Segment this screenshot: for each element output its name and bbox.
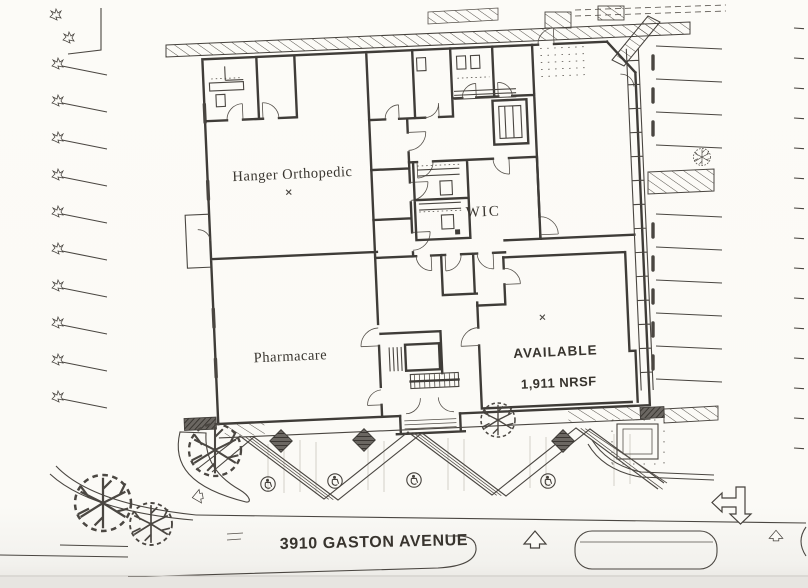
scan-edge-strip bbox=[0, 577, 808, 588]
suite-label-pharmacare: Pharmacare bbox=[253, 347, 327, 366]
street-lane-lines-left bbox=[0, 545, 128, 557]
hatch-fragment bbox=[428, 8, 498, 24]
toilet bbox=[456, 56, 466, 69]
toilet bbox=[416, 58, 426, 71]
elevator-cab bbox=[499, 105, 522, 138]
west-alcove-door-arc bbox=[198, 229, 211, 242]
tree-icon bbox=[189, 424, 241, 476]
rooftop-unit bbox=[545, 12, 571, 28]
walkway-hatch bbox=[224, 423, 264, 437]
vestibule-steps bbox=[404, 419, 456, 429]
wic-suite bbox=[409, 156, 558, 244]
curb-return-arc bbox=[801, 527, 806, 556]
west-entry-alcove bbox=[185, 214, 211, 268]
planter-diamond bbox=[552, 430, 575, 453]
north-sidewalk-band bbox=[166, 22, 690, 57]
available-door-arc bbox=[460, 328, 479, 347]
parking-left-curb bbox=[68, 8, 101, 54]
stair-landing bbox=[405, 343, 440, 370]
restroom-walls bbox=[204, 57, 297, 121]
wc-counter-2 bbox=[419, 202, 461, 210]
restroom-door-arcs bbox=[226, 102, 279, 120]
traffic-arrow-up-icon bbox=[524, 531, 546, 548]
suite-label-hanger-orthopedic: Hanger Orthopedic bbox=[232, 164, 353, 185]
toilet bbox=[441, 215, 454, 230]
toilet bbox=[216, 94, 226, 106]
stair-lobby bbox=[360, 324, 465, 435]
scan-edge bbox=[0, 576, 808, 588]
street-name-label: 3910 GASTON AVENUE bbox=[280, 532, 469, 553]
stall-chevron-1 bbox=[196, 428, 658, 499]
stall-striping-faint bbox=[268, 434, 630, 494]
wheelchair-icon bbox=[328, 474, 342, 488]
suite-label-available-area: 1,911 NRSF bbox=[521, 373, 597, 391]
parking-right bbox=[648, 28, 804, 449]
street-curb bbox=[196, 515, 806, 523]
curb-tick-dashes bbox=[794, 28, 804, 449]
planter-diamond bbox=[270, 430, 293, 453]
toilet bbox=[440, 181, 453, 196]
window-mullions bbox=[626, 48, 653, 390]
tile-dot-grid bbox=[540, 46, 589, 76]
suite-label-wic: WIC bbox=[465, 203, 501, 221]
site-plan-svg: Hanger Orthopedic Pharmacare WIC AVAILAB… bbox=[0, 0, 808, 588]
suite-label-available: AVAILABLE bbox=[513, 342, 598, 361]
traffic-arrow-fork-icon bbox=[712, 487, 751, 524]
floor-drain bbox=[455, 229, 460, 234]
exterior-walls bbox=[202, 40, 650, 423]
corridor-offices bbox=[369, 116, 505, 273]
wc-counter-1 bbox=[417, 168, 459, 176]
stair-rail bbox=[411, 379, 459, 381]
toilet bbox=[470, 55, 480, 68]
hanger-restrooms bbox=[204, 57, 297, 121]
tree-icon bbox=[130, 503, 172, 545]
elevator-rails bbox=[505, 106, 514, 138]
building: Hanger Orthopedic Pharmacare WIC AVAILAB… bbox=[168, 24, 665, 444]
rooftop-unit bbox=[598, 6, 624, 20]
median-island bbox=[575, 531, 717, 569]
traffic-arrow-up-small-icon bbox=[769, 530, 783, 541]
office-walls bbox=[369, 116, 505, 258]
parking-right-stall-lines bbox=[656, 46, 722, 382]
counter-dots bbox=[211, 78, 241, 79]
pedestrian-walkway-hatch bbox=[648, 169, 714, 194]
wheelchair-icon bbox=[407, 473, 421, 487]
fixture-dots bbox=[457, 77, 489, 78]
traffic-arrow-left-icon bbox=[191, 489, 204, 504]
planter-dark bbox=[640, 407, 664, 419]
east-window-band bbox=[626, 48, 653, 390]
parking-left-stall-lines bbox=[62, 66, 107, 408]
tree-icon bbox=[694, 149, 711, 166]
wc-counter-dots bbox=[417, 164, 461, 212]
wheelchair-icon bbox=[541, 474, 555, 488]
stair-treads-upper bbox=[389, 347, 406, 372]
parking-left bbox=[50, 8, 107, 408]
north-rooms bbox=[365, 25, 640, 246]
elevator bbox=[492, 99, 528, 144]
scanned-site-plan: Hanger Orthopedic Pharmacare WIC AVAILAB… bbox=[0, 0, 808, 588]
se-walkway-hatch bbox=[664, 406, 718, 423]
lane-dashes bbox=[227, 533, 243, 540]
